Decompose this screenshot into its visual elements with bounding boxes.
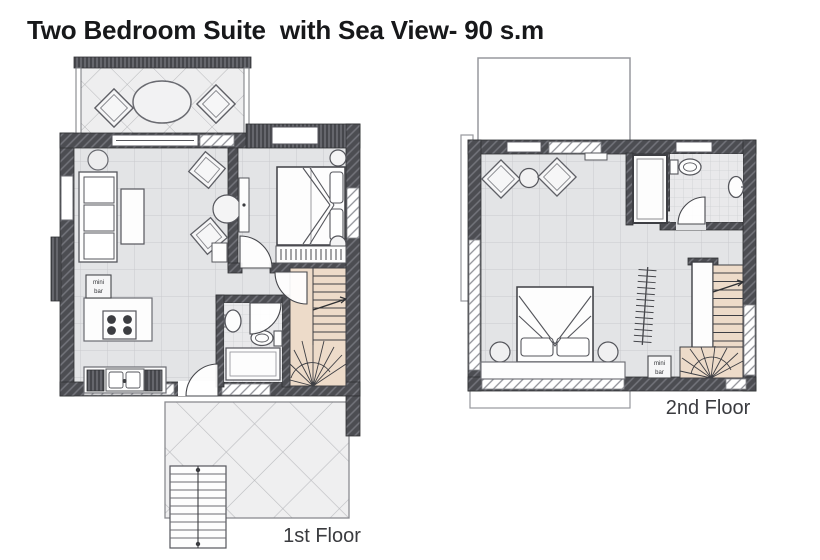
wardrobe-rail: [276, 246, 346, 263]
appliance: [87, 370, 104, 391]
roof-outline-top: [478, 58, 630, 143]
roof-outline-bottom: [470, 389, 630, 408]
minibar-2: mini bar: [648, 356, 671, 378]
second-floor-label: 2nd Floor: [666, 397, 751, 419]
minibar-label-line2: bar: [94, 289, 103, 295]
external-staircase: [170, 466, 226, 548]
sofa: [79, 172, 117, 262]
shower-tray: [226, 348, 280, 380]
bedside-lamp: [330, 150, 346, 166]
window-top: [507, 142, 541, 152]
pillow: [557, 338, 589, 356]
bathroom-1: [224, 303, 282, 382]
floorplan-image: Two Bedroom Suite with Sea View- 90 s.m: [0, 0, 820, 560]
minibar-1: mini bar: [86, 275, 111, 298]
coffee-table: [121, 189, 144, 244]
headboard-cabinet: [481, 362, 625, 379]
pillow: [330, 209, 343, 240]
toilet-icon: [670, 159, 701, 175]
stool: [598, 342, 618, 362]
exterior-shutter: [51, 237, 61, 301]
washbasin-icon: [225, 310, 241, 332]
kitchen-sink-icon: [106, 369, 144, 391]
window-right: [347, 188, 359, 238]
terrace-table: [133, 81, 191, 123]
bedroom-window: [272, 127, 318, 144]
appliance: [145, 370, 162, 391]
stool: [490, 342, 510, 362]
window-top: [676, 142, 712, 152]
side-table: [212, 243, 227, 262]
pillow: [521, 338, 553, 356]
tv-knob: [242, 203, 245, 206]
closet: [692, 262, 713, 348]
window-left: [61, 176, 73, 220]
first-floor-label: 1st Floor: [283, 525, 361, 547]
side-table: [520, 169, 539, 188]
plant: [88, 150, 108, 170]
double-bed-icon: [277, 167, 345, 245]
second-floor-plan: mini bar 2nd Floor: [461, 58, 756, 419]
stove-icon: [103, 311, 136, 339]
minibar-label-line1: mini: [654, 361, 665, 367]
pillow: [330, 172, 343, 203]
bathroom-2: [670, 154, 744, 224]
shower-cabin: [633, 155, 667, 223]
dining-table: [213, 195, 241, 223]
minibar-label-line2: bar: [655, 370, 664, 376]
terrace-railing: [74, 57, 251, 68]
double-bed-icon: [517, 287, 593, 362]
upper-terrace: [74, 57, 251, 145]
tv-unit: [585, 153, 607, 160]
floorplan-svg: mini bar 1st Floor: [0, 0, 820, 560]
first-floor-plan: mini bar 1st Floor: [51, 57, 361, 548]
minibar-label-line1: mini: [93, 280, 104, 286]
